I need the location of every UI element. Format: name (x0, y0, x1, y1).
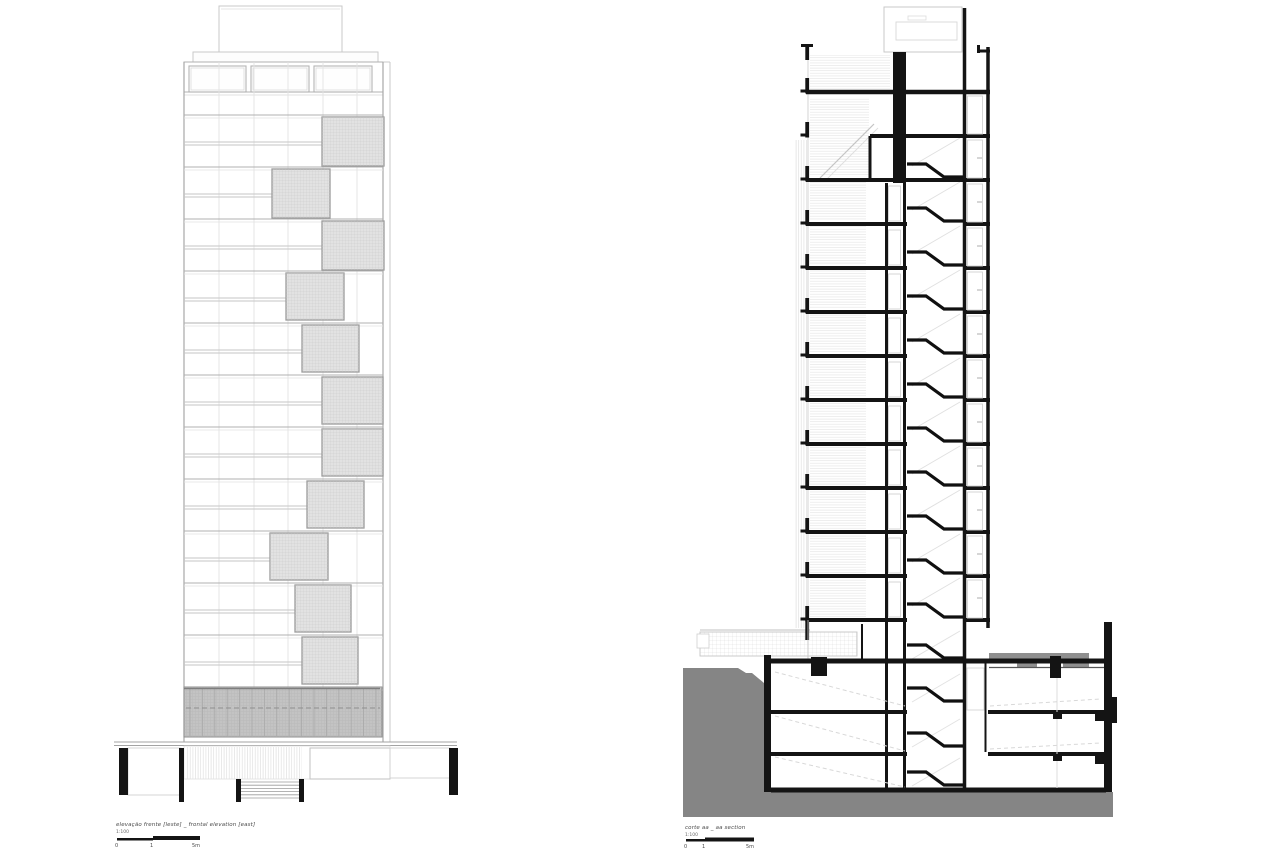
section-scalebar-tick-1: 1 (702, 844, 705, 850)
section-title: corte aa _ aa section (685, 825, 745, 832)
section-scalebar-tick-5m: 5m (746, 844, 754, 850)
drawing-sheet: elevação frente [leste] _ frontal elevat… (0, 0, 1280, 853)
drawings-canvas (0, 0, 1280, 853)
section-scale-label: 1:100 (685, 833, 745, 839)
section-caption: corte aa _ aa section 1:100 (685, 825, 745, 839)
aa-section-drawing (683, 7, 1117, 842)
section-scalebar-tick-0: 0 (684, 844, 687, 850)
elevation-scalebar-tick-0: 0 (115, 843, 118, 849)
elevation-caption: elevação frente [leste] _ frontal elevat… (116, 822, 255, 836)
elevation-scale-label: 1:100 (116, 830, 255, 836)
elevation-scalebar-tick-5m: 5m (192, 843, 200, 849)
elevation-title: elevação frente [leste] _ frontal elevat… (116, 822, 255, 829)
elevation-scalebar-tick-1: 1 (150, 843, 153, 849)
frontal-elevation-drawing (114, 6, 458, 841)
